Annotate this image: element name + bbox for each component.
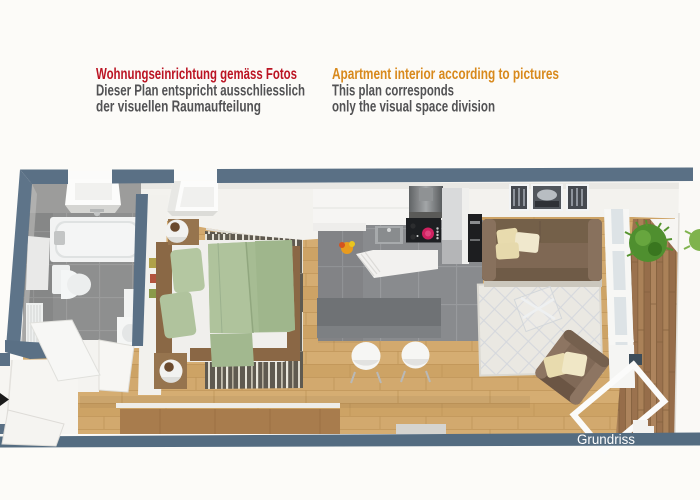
- svg-text:Wohnungseinrichtung gemäss Fot: Wohnungseinrichtung gemäss Fotos: [96, 66, 297, 83]
- svg-text:only the visual space division: only the visual space division: [332, 99, 495, 116]
- svg-text:der visuellen Raumaufteilung: der visuellen Raumaufteilung: [96, 99, 261, 116]
- svg-text:Dieser Plan entspricht ausschl: Dieser Plan entspricht ausschliesslich: [96, 83, 305, 100]
- svg-text:This plan corresponds: This plan corresponds: [332, 83, 454, 100]
- svg-text:Grundriss: Grundriss: [577, 432, 635, 447]
- svg-text:Apartment interior according t: Apartment interior according to pictures: [332, 66, 559, 83]
